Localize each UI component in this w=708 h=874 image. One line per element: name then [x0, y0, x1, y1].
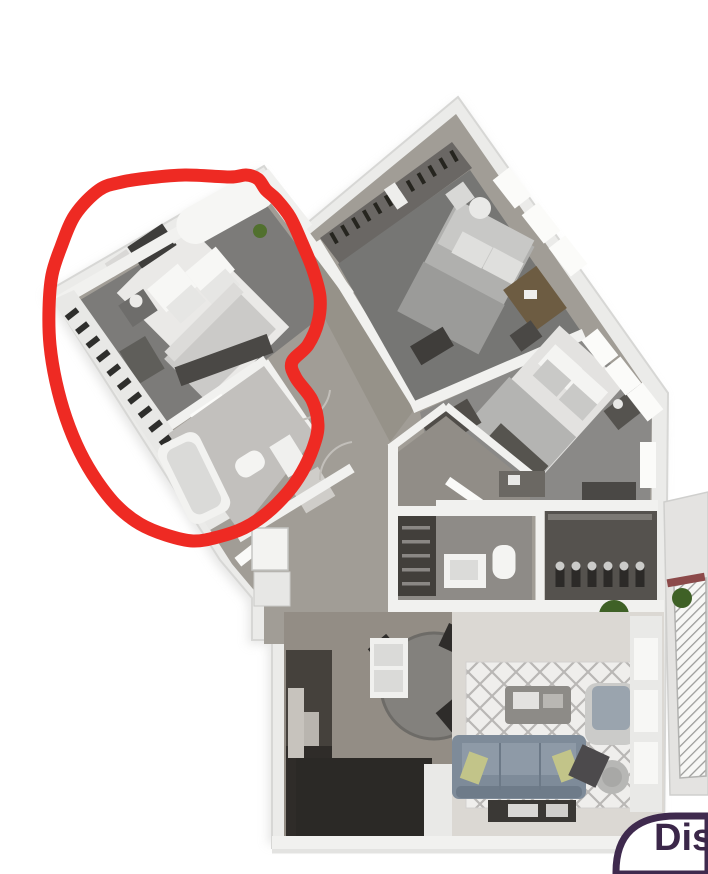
- svg-text:Dis: Dis: [654, 817, 708, 859]
